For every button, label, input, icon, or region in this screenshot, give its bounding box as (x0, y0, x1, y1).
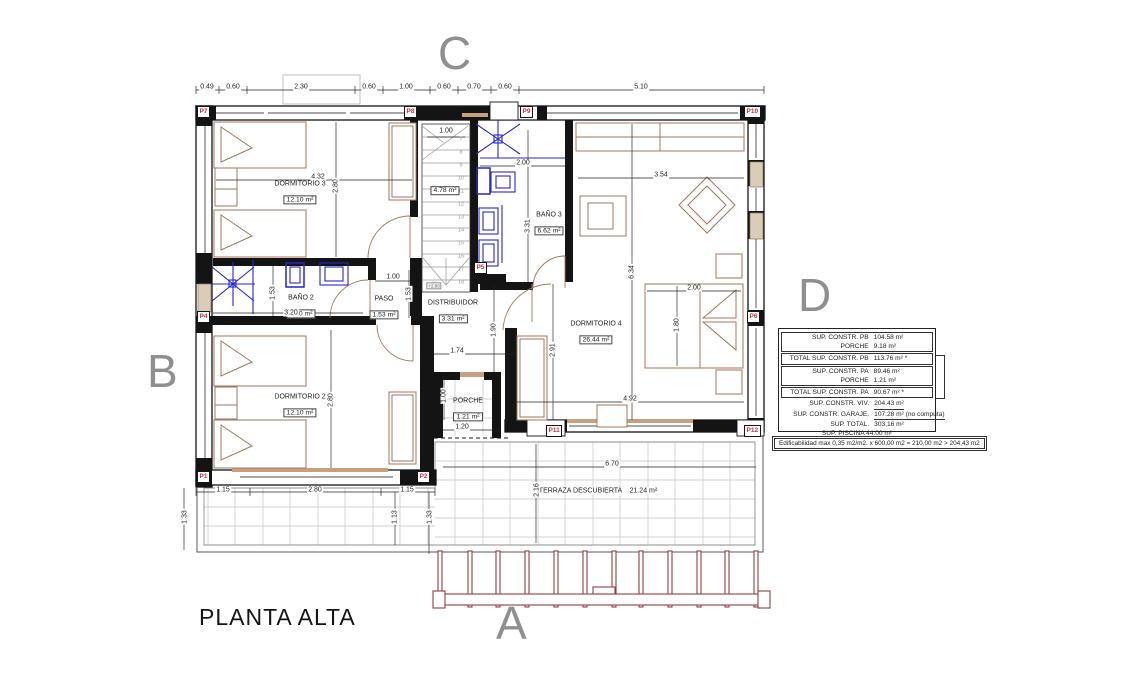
dimension-label: 1.53 (270, 285, 277, 301)
table-row: PORCHE 9.18 m² (784, 342, 930, 351)
dimension-label: 1.53 (406, 286, 413, 302)
stair-step-number: 10 (458, 176, 464, 182)
room-name: BAÑO 2 (286, 294, 315, 302)
room-label: 4.78 m² (430, 179, 459, 197)
room-area: 12.10 m² (284, 195, 317, 204)
bed (214, 210, 306, 257)
dimension-label: 3.20 (283, 310, 299, 317)
nightstand (716, 254, 742, 278)
row-label: TOTAL SUP. CONSTR. PB (784, 354, 874, 363)
pillar-marker: P12 (744, 425, 761, 437)
stair-step-number: 15 (458, 241, 464, 247)
room-label: BAÑO 3 6.62 m² (534, 211, 563, 236)
row-value: 303,16 m² (874, 420, 904, 429)
dimension-label: 1.33 (182, 509, 189, 525)
table-row: TOTAL SUP. CONSTR. PA 90.67 m² * (784, 388, 930, 397)
row-value: 89.46 m² (874, 367, 900, 376)
sink (286, 263, 304, 287)
pouf (597, 405, 627, 427)
row-label: PORCHE (784, 376, 874, 385)
room-label: DORMITORIO 3 12.10 m² (274, 180, 325, 205)
dimension-label: 2.80 (307, 487, 323, 494)
floor-plan-linework (0, 0, 1137, 682)
room-area: 1.53 m² (369, 310, 398, 319)
dimension-label: 2.80 (333, 178, 340, 194)
table-row: SUP. CONSTR. PB 104.58 m² (784, 333, 930, 342)
room-name: DISTRIBUIDOR (428, 299, 478, 307)
closet (517, 336, 547, 420)
pillar-marker: P10 (744, 106, 761, 118)
table-box: SUP. CONSTR. PB 104.58 m² PORCHE 9.18 m² (781, 332, 933, 352)
room-name: DORMITORIO 4 (570, 320, 621, 328)
bed (214, 336, 306, 386)
dimension-label: 2.30 (293, 84, 309, 91)
dimension-label: 1.15 (215, 487, 231, 494)
stair-step-number: 12 (458, 202, 464, 208)
dimension-label: 2.91 (550, 342, 557, 358)
row-value: 1.21 m² (874, 376, 896, 385)
row-label: TOTAL SUP. CONSTR. PA (784, 388, 874, 397)
dimension-label: 1.80 (674, 317, 681, 333)
pillar-marker: P9 (520, 106, 533, 118)
terrace-label: TERRAZA DESCUBIERTA 21.24 m² (537, 488, 659, 495)
room-area: 3.31 m² (438, 314, 467, 323)
bed (214, 420, 306, 468)
row-value: 90.67 m² * (874, 388, 904, 397)
pillar-marker: P7 (197, 106, 210, 118)
stair-step-number: 17 (458, 267, 464, 273)
row-label: SUP. CONSTR. PA (784, 367, 874, 376)
room-label: DORMITORIO 2 12.10 m² (274, 393, 325, 418)
row-label: SUP. TOTAL. (781, 420, 874, 429)
stair-step-number: 8 (459, 150, 462, 156)
pool-area-note: SUP. PISCINA 44.00 m² (778, 430, 936, 437)
dimension-label: 3.54 (653, 172, 669, 179)
table-box: TOTAL SUP. CONSTR. PA 90.67 m² * (781, 387, 933, 398)
table-row: SUP. CONSTR. GARAJE. 107.28 m² (no compu… (781, 410, 933, 420)
pillar-marker: P2 (417, 471, 430, 483)
nightstand (215, 387, 237, 419)
toilet (479, 208, 498, 234)
dimension-label: 0.60 (497, 84, 513, 91)
nightstand (215, 168, 237, 206)
room-name: PORCHE (453, 397, 483, 405)
row-value: 107.28 m² (no computa) (874, 410, 944, 420)
level-tag: +2.80 (426, 282, 441, 289)
row-label: PORCHE (784, 342, 874, 351)
stair-step-number: 9 (459, 163, 462, 169)
double-bed (645, 284, 743, 368)
table-box: SUP. CONSTR. PA 89.46 m² PORCHE 1.21 m² (781, 366, 933, 386)
pillar-marker: P11 (546, 425, 562, 437)
room-label: PORCHE 1.21 m² (453, 397, 483, 422)
dimension-label: 4.32 (310, 174, 326, 181)
room-area: 6.62 m² (534, 226, 563, 235)
room-name: DORMITORIO 3 (274, 180, 325, 188)
table-row: PORCHE 1.21 m² (784, 376, 930, 385)
ceiling-light-icon (476, 120, 520, 158)
dimension-label: 4.92 (622, 396, 638, 403)
stair-step-number: 18 (458, 280, 464, 286)
dimension-label: 0.60 (436, 84, 452, 91)
dimension-label: 1.00 (438, 128, 454, 135)
buildability-note: Edificabilidad max 0,35 m2/m2. x 600,00 … (774, 438, 985, 449)
wardrobe (389, 392, 416, 464)
stair-step-number: 11 (458, 189, 464, 195)
room-area: 4.78 m² (430, 186, 459, 195)
room-area: 1.21 m² (453, 412, 482, 421)
pillar-marker: P1 (197, 471, 210, 483)
dimension-label: 2.00 (515, 160, 531, 167)
row-label: SUP. CONSTR. PB (784, 333, 874, 342)
section-letter: D (798, 272, 831, 318)
row-value: 9.18 m² (874, 342, 896, 351)
table-row: SUP. CONSTR. PA 89.46 m² (784, 367, 930, 376)
dimension-label: 0.70 (466, 84, 482, 91)
room-name: DORMITORIO 2 (274, 393, 325, 401)
table-box: TOTAL SUP. CONSTR. PB 113.76 m² * (781, 353, 933, 364)
table-row: SUP. TOTAL. 303,16 m² (781, 420, 933, 429)
dimension-label: 1.00 (398, 84, 414, 91)
wardrobe (389, 123, 416, 200)
pergola (433, 551, 770, 608)
armchair (580, 196, 626, 236)
dimension-label: 3.31 (525, 218, 532, 234)
dimension-label: 2.80 (328, 392, 335, 408)
dimension-label: 2.00 (686, 285, 702, 292)
dimension-label: 6.34 (629, 264, 636, 280)
dimension-label: 0.49 (199, 84, 215, 91)
room-label: DORMITORIO 4 26.44 m² (570, 320, 621, 345)
room-area: 26.44 m² (580, 335, 613, 344)
dimension-label: 5.10 (633, 84, 649, 91)
nightstand (716, 370, 742, 394)
dimension-label: 1.90 (491, 322, 498, 338)
section-letter: B (147, 348, 178, 394)
room-name: BAÑO 3 (534, 211, 563, 219)
bed (214, 122, 306, 168)
dimension-label: 1.15 (399, 487, 415, 494)
dimension-label: 1.00 (385, 274, 401, 281)
table (679, 177, 735, 233)
row-value: 113.76 m² * (874, 354, 908, 363)
stair-step-number: 13 (458, 215, 464, 221)
row-value: 104.58 m² (874, 333, 904, 342)
row-value: 204.43 m² (874, 399, 904, 409)
pillar-marker: P6 (747, 311, 760, 323)
dimension-label: 1.00 (441, 388, 448, 404)
table-row: TOTAL SUP. CONSTR. PB 113.76 m² * (784, 354, 930, 363)
row-label: SUP. CONSTR. GARAJE. (781, 410, 874, 420)
area-summary-table: SUP. CONSTR. PB 104.58 m² PORCHE 9.18 m²… (778, 328, 936, 432)
stair-step-number: 7 (459, 137, 462, 143)
dimension-label: 1.13 (392, 509, 399, 525)
stair-step-number: 16 (458, 254, 464, 260)
section-letter: A (496, 600, 527, 646)
room-name: PASO (369, 295, 398, 303)
table-row: SUP. CONSTR. VIV. 204.43 m² (781, 399, 933, 409)
dimension-label: 0.60 (361, 84, 377, 91)
row-label: SUP. CONSTR. VIV. (781, 399, 874, 409)
section-letter: C (438, 30, 471, 76)
dimension-label: 1.74 (449, 348, 465, 355)
floor-plan-page: CBDA PLANTA ALTA DORMITORIO 3 12.10 m² B… (0, 0, 1137, 682)
ceiling-light-icon (211, 262, 255, 306)
dimension-label: 6.70 (604, 461, 620, 468)
pillar-marker: P8 (404, 106, 417, 118)
toilet (320, 263, 348, 285)
dimension-label: 1.33 (427, 509, 434, 525)
room-label: PASO 1.53 m² (369, 295, 398, 320)
wardrobe (576, 123, 744, 151)
dimension-label: 2.16 (534, 482, 541, 498)
pillar-marker: P4 (197, 311, 210, 323)
table-sum-bracket (936, 355, 945, 399)
pillar-marker: P5 (474, 262, 487, 274)
dimension-label: 1.20 (454, 424, 470, 431)
dimension-label: 0.60 (225, 84, 241, 91)
page-title: PLANTA ALTA (199, 604, 356, 631)
stair-step-number: 14 (458, 228, 464, 234)
sink (477, 168, 515, 194)
room-label: DISTRIBUIDOR 3.31 m² (428, 299, 478, 324)
room-area: 12.10 m² (284, 408, 317, 417)
